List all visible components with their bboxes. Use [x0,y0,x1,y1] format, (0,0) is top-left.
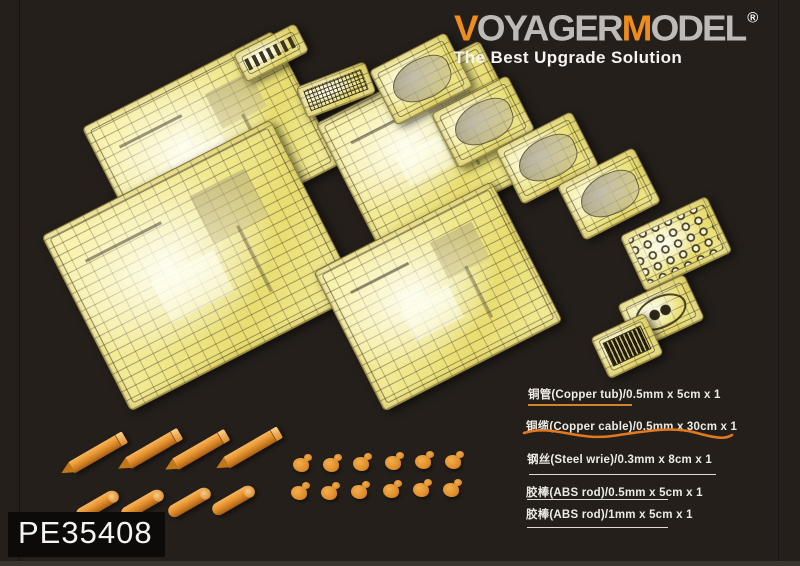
orange-resin-part [385,456,401,470]
logo-letters-odel: ODEL [650,8,745,48]
orange-resin-part [415,455,431,469]
spec-steel-wire-label: 钢丝(Steel wrie)/0.3mm x 8cm x 1 [527,451,712,467]
round-rod-3 [166,485,212,519]
orange-resin-part [413,483,429,497]
voyager-model-logo: VOYAGERMODEL® The Best Upgrade Solution [454,10,758,66]
orange-resin-part [291,486,307,500]
spec-copper-tube-label: 铜管(Copper tub)/0.5mm x 5cm x 1 [528,386,721,402]
product-code-text: PE35408 [18,515,153,550]
logo-letter-m: M [622,8,651,48]
orange-resin-part [351,485,367,499]
orange-resin-part [443,483,459,497]
orange-resin-part [445,455,461,469]
steel-wire-sample-line [529,474,716,475]
logo-letters-oyager: OYAGER [477,8,622,48]
pointed-barrel-rod-4 [223,426,283,468]
product-photo: VOYAGERMODEL® The Best Upgrade Solution … [0,0,800,566]
photo-bottom-edge [0,561,800,566]
spec-abs-rod-05-label: 胶棒(ABS rod)/0.5mm x 5cm x 1 [526,484,703,500]
registered-trademark-icon: ® [747,10,758,27]
film-edge-left [19,0,20,566]
included-materials-list: 铜管(Copper tub)/0.5mm x 5cm x 1 铜缆(Copper… [522,378,794,548]
abs-rod-1-sample-line [527,527,668,528]
copper-cable-sample-line [522,424,734,444]
abs-rod-05-sample-line [527,499,668,500]
spec-abs-rod-1-label: 胶棒(ABS rod)/1mm x 5cm x 1 [526,506,693,522]
orange-resin-part [321,486,337,500]
orange-resin-part [353,457,369,471]
orange-resin-part [323,458,339,472]
orange-resin-part [383,484,399,498]
product-code-box: PE35408 [8,512,165,557]
logo-wordmark: VOYAGERMODEL® [454,10,758,46]
copper-tube-sample-line [528,404,632,406]
orange-resin-part [293,458,309,472]
logo-letter-v: V [454,8,477,48]
brand-tagline: The Best Upgrade Solution [454,49,758,66]
round-rod-4 [210,483,256,517]
